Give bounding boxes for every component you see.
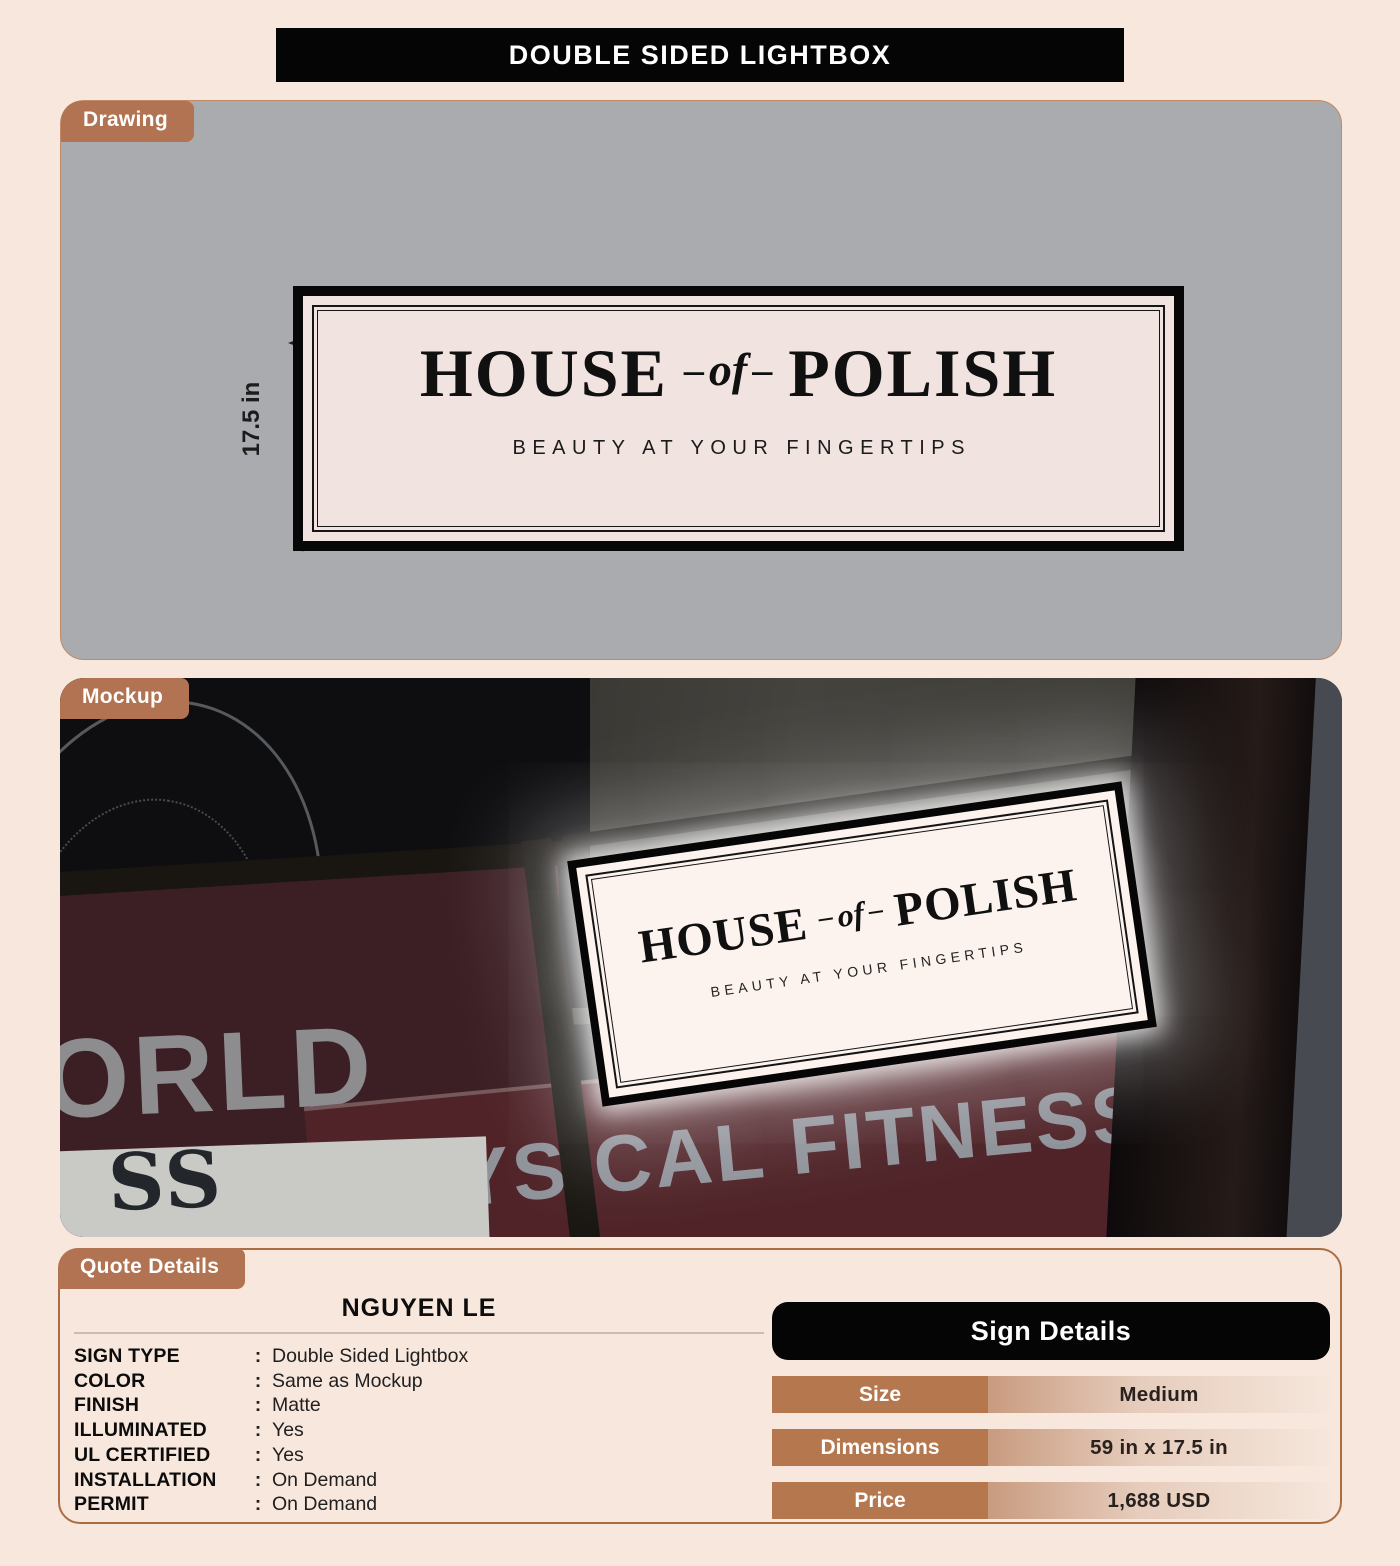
- sign-details-header: Sign Details: [772, 1302, 1330, 1360]
- quote-row-colon: :: [250, 1369, 266, 1394]
- mockup-tab-label: Mockup: [82, 685, 163, 709]
- sign-brand-name: HOUSE – of – POLISH: [420, 339, 1057, 407]
- quote-row-label: FINISH: [74, 1393, 250, 1418]
- quote-row-label: PERMIT: [74, 1492, 250, 1517]
- quote-row-finish: FINISH : Matte: [74, 1393, 764, 1418]
- sign-details-row-label: Dimensions: [772, 1429, 988, 1466]
- mockup-brand-dash-left: –: [817, 903, 835, 933]
- quote-row-sign-type: SIGN TYPE : Double Sided Lightbox: [74, 1344, 764, 1369]
- sign-details-row-value: Medium: [988, 1376, 1330, 1413]
- brand-dash-right: –: [752, 350, 772, 390]
- quote-row-label: UL CERTIFIED: [74, 1443, 250, 1468]
- drawing-panel: Drawing 59 in 17.5 in HOUSE –: [60, 100, 1342, 660]
- quote-row-value: Same as Mockup: [266, 1369, 764, 1394]
- brand-dash-left: –: [684, 350, 704, 390]
- quote-row-color: COLOR : Same as Mockup: [74, 1369, 764, 1394]
- height-dimension-label: 17.5 in: [238, 364, 266, 474]
- page-title-text: DOUBLE SIDED LIGHTBOX: [509, 40, 892, 71]
- quote-row-label: ILLUMINATED: [74, 1418, 250, 1443]
- quote-details-tab: Quote Details: [58, 1248, 245, 1289]
- quote-row-label: INSTALLATION: [74, 1468, 250, 1493]
- mockup-brand-word-polish: POLISH: [892, 862, 1080, 935]
- sign-details-row-value: 1,688 USD: [988, 1482, 1330, 1519]
- sign-tagline: BEAUTY AT YOUR FINGERTIPS: [512, 437, 971, 460]
- quote-details-tab-label: Quote Details: [80, 1255, 219, 1279]
- quote-row-value: On Demand: [266, 1468, 764, 1493]
- quote-row-installation: INSTALLATION : On Demand: [74, 1468, 764, 1493]
- mockup-brand-connector: – of –: [816, 894, 885, 935]
- quote-row-label: COLOR: [74, 1369, 250, 1394]
- sign-details-title: Sign Details: [971, 1316, 1132, 1347]
- page-title: DOUBLE SIDED LIGHTBOX: [276, 28, 1124, 82]
- quote-row-label: SIGN TYPE: [74, 1344, 250, 1369]
- quote-row-value: Matte: [266, 1393, 764, 1418]
- sign-drawing: HOUSE – of – POLISH BEAUTY AT YOUR FINGE…: [293, 286, 1184, 551]
- sign-details-row-label: Size: [772, 1376, 988, 1413]
- drawing-tab-label: Drawing: [83, 108, 168, 132]
- quote-row-value: On Demand: [266, 1492, 764, 1517]
- sign-details-row-label: Price: [772, 1482, 988, 1519]
- divider: [74, 1332, 764, 1334]
- customer-name: NGUYEN LE: [74, 1294, 764, 1323]
- sign-drawing-inner-rule: HOUSE – of – POLISH BEAUTY AT YOUR FINGE…: [317, 310, 1160, 527]
- sign-details-row-dimensions: Dimensions 59 in x 17.5 in: [772, 1429, 1330, 1466]
- brand-word-polish: POLISH: [788, 339, 1057, 407]
- quote-row-permit: PERMIT : On Demand: [74, 1492, 764, 1517]
- quote-row-illuminated: ILLUMINATED : Yes: [74, 1418, 764, 1443]
- mockup-brand-word-house: HOUSE: [636, 900, 811, 971]
- sign-details-row-size: Size Medium: [772, 1376, 1330, 1413]
- brand-word-house: HOUSE: [420, 339, 668, 407]
- brand-connector: – of –: [684, 347, 772, 393]
- quote-row-value: Yes: [266, 1418, 764, 1443]
- quote-row-colon: :: [250, 1344, 266, 1369]
- quote-row-colon: :: [250, 1418, 266, 1443]
- sign-details-row-price: Price 1,688 USD: [772, 1482, 1330, 1519]
- drawing-tab: Drawing: [61, 101, 194, 142]
- sign-drawing-face: HOUSE – of – POLISH BEAUTY AT YOUR FINGE…: [303, 296, 1174, 541]
- quote-row-colon: :: [250, 1393, 266, 1418]
- quote-row-value: Yes: [266, 1443, 764, 1468]
- quote-row-colon: :: [250, 1492, 266, 1517]
- sign-details-card: Sign Details Size Medium Dimensions 59 i…: [772, 1302, 1330, 1519]
- quote-details-panel: Quote Details NGUYEN LE SIGN TYPE : Doub…: [58, 1248, 1342, 1524]
- quote-row-colon: :: [250, 1468, 266, 1493]
- brand-word-of: of: [709, 347, 747, 393]
- neighbor-sign-corner-text: SS: [106, 1134, 224, 1229]
- mockup-brand-dash-right: –: [867, 896, 885, 926]
- sign-details-row-value: 59 in x 17.5 in: [988, 1429, 1330, 1466]
- mockup-sign-inner-rule: HOUSE – of – POLISH BEAUTY AT YOUR FINGE…: [591, 805, 1133, 1083]
- sign-drawing-outer-rule: HOUSE – of – POLISH BEAUTY AT YOUR FINGE…: [312, 305, 1165, 532]
- quote-info: NGUYEN LE SIGN TYPE : Double Sided Light…: [74, 1294, 764, 1517]
- mockup-panel: AMING IU ORLD PHYSICAL FITNESS SS HOUSE …: [60, 678, 1342, 1237]
- quote-row-value: Double Sided Lightbox: [266, 1344, 764, 1369]
- quote-row-colon: :: [250, 1443, 266, 1468]
- mockup-tab: Mockup: [60, 678, 189, 719]
- quote-row-ul-certified: UL CERTIFIED : Yes: [74, 1443, 764, 1468]
- mockup-brand-word-of: of: [835, 897, 866, 932]
